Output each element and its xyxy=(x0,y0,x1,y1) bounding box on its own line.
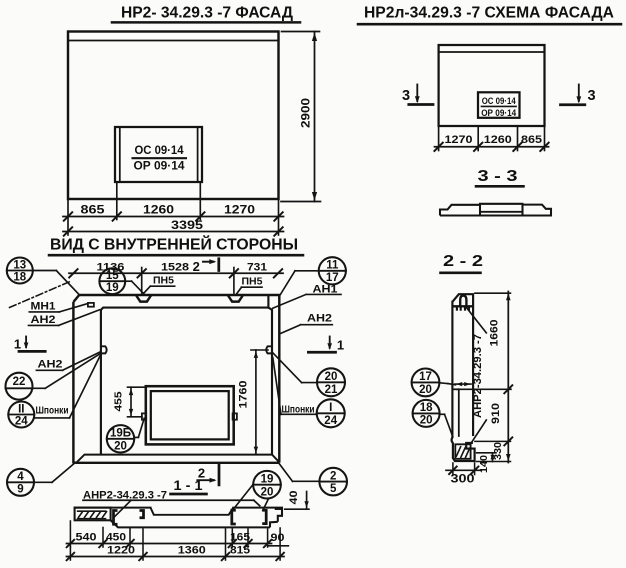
svg-text:II: II xyxy=(18,403,24,415)
svg-text:ПН5: ПН5 xyxy=(242,276,263,288)
svg-text:13: 13 xyxy=(13,259,26,271)
svg-text:2: 2 xyxy=(330,470,336,482)
svg-text:1: 1 xyxy=(14,337,21,352)
svg-text:20: 20 xyxy=(261,486,274,498)
svg-text:17: 17 xyxy=(419,371,432,383)
svg-text:20: 20 xyxy=(419,384,432,396)
svg-text:165: 165 xyxy=(230,532,250,544)
svg-text:1220: 1220 xyxy=(107,545,135,557)
svg-text:ОС 09·14: ОС 09·14 xyxy=(482,96,516,106)
svg-text:АН2: АН2 xyxy=(307,313,332,325)
svg-text:НР2л-34.29.3 -7 СХЕМА ФАСА: НР2л-34.29.3 -7 СХЕМА ФАСАДА xyxy=(364,5,614,22)
svg-text:1760: 1760 xyxy=(238,381,250,409)
svg-text:АНР2-34.29.3 -7: АНР2-34.29.3 -7 xyxy=(472,334,484,418)
svg-text:21: 21 xyxy=(325,384,338,396)
svg-text:ОР 09·14: ОР 09·14 xyxy=(481,108,516,118)
svg-text:20: 20 xyxy=(325,371,338,383)
svg-text:2 - 2: 2 - 2 xyxy=(443,253,483,270)
svg-text:24: 24 xyxy=(15,415,28,427)
svg-text:17: 17 xyxy=(326,272,339,284)
svg-text:1360: 1360 xyxy=(178,545,206,557)
svg-text:865: 865 xyxy=(521,134,542,146)
svg-text:20: 20 xyxy=(420,415,433,427)
svg-text:I: I xyxy=(329,402,332,414)
svg-text:1260: 1260 xyxy=(143,205,174,217)
svg-text:4: 4 xyxy=(17,471,24,483)
svg-text:300: 300 xyxy=(451,472,475,486)
svg-text:24: 24 xyxy=(324,415,337,427)
svg-text:ВИД С ВНУТРЕННЕЙ СТОРОНЫ: ВИД С ВНУТРЕННЕЙ СТОРОНЫ xyxy=(50,236,298,254)
svg-text:731: 731 xyxy=(247,262,267,274)
svg-text:2: 2 xyxy=(193,259,200,274)
svg-text:1528: 1528 xyxy=(161,262,189,274)
svg-text:1260: 1260 xyxy=(484,134,512,146)
svg-text:1270: 1270 xyxy=(445,134,473,146)
svg-text:19Б: 19Б xyxy=(110,428,131,440)
svg-text:НР2- 34.29.3 -7 ФАСАД: НР2- 34.29.3 -7 ФАСАД xyxy=(121,5,293,22)
svg-text:3395: 3395 xyxy=(171,220,204,232)
svg-text:Шпонки: Шпонки xyxy=(36,405,69,417)
svg-text:АН2: АН2 xyxy=(38,359,63,371)
svg-text:815: 815 xyxy=(230,545,250,557)
svg-text:20: 20 xyxy=(114,440,127,452)
svg-text:МН1: МН1 xyxy=(31,301,56,313)
svg-text:1660: 1660 xyxy=(489,320,501,347)
svg-text:1 - 1: 1 - 1 xyxy=(174,478,204,493)
svg-text:1: 1 xyxy=(337,338,344,353)
svg-text:18: 18 xyxy=(420,402,433,414)
svg-text:9: 9 xyxy=(17,484,23,496)
svg-text:2900: 2900 xyxy=(301,98,313,128)
svg-text:455: 455 xyxy=(113,391,125,411)
svg-text:450: 450 xyxy=(106,532,126,544)
svg-text:5: 5 xyxy=(330,483,337,495)
svg-text:11: 11 xyxy=(326,260,339,272)
svg-text:АН2: АН2 xyxy=(31,314,56,326)
svg-text:18: 18 xyxy=(13,271,26,283)
svg-text:22: 22 xyxy=(13,376,26,388)
svg-text:3 - 3: 3 - 3 xyxy=(478,168,518,185)
svg-text:865: 865 xyxy=(81,205,106,217)
svg-text:330: 330 xyxy=(492,442,504,460)
svg-text:540: 540 xyxy=(76,532,97,544)
svg-text:1270: 1270 xyxy=(224,205,255,217)
svg-text:ОР 09·14: ОР 09·14 xyxy=(134,161,186,173)
svg-text:3: 3 xyxy=(587,88,595,104)
svg-text:90: 90 xyxy=(271,532,285,544)
svg-text:ПН5: ПН5 xyxy=(153,275,174,287)
svg-text:15: 15 xyxy=(106,270,119,282)
svg-text:19: 19 xyxy=(261,474,274,486)
svg-text:910: 910 xyxy=(490,403,502,424)
svg-text:19: 19 xyxy=(106,282,119,294)
svg-text:3: 3 xyxy=(402,88,410,104)
svg-text:40: 40 xyxy=(288,491,300,505)
svg-text:ОС 09·14: ОС 09·14 xyxy=(135,145,185,157)
